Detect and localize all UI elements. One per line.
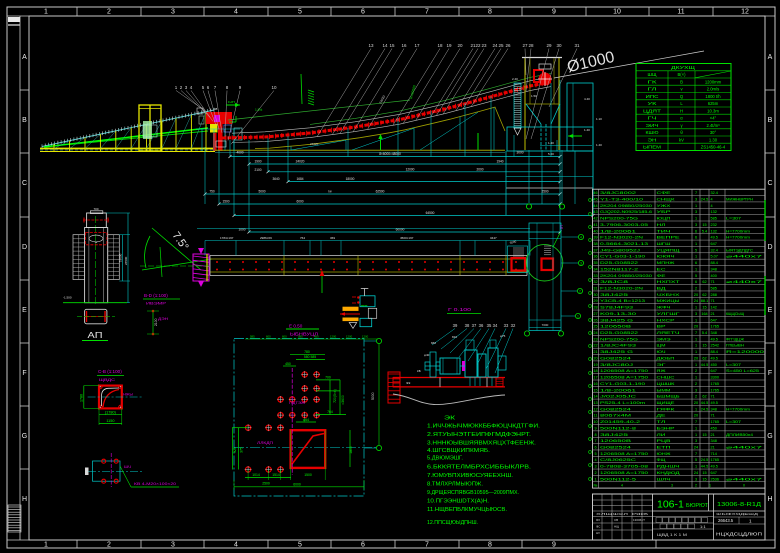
svg-text:15: 15 — [702, 477, 706, 481]
svg-text:34: 34 — [493, 323, 498, 328]
svg-text:37: 37 — [472, 323, 477, 328]
svg-text:3: 3 — [671, 484, 673, 488]
svg-text:45: 45 — [593, 198, 597, 202]
svg-text:ШЧ: ШЧ — [124, 465, 132, 469]
svg-text:88.1: 88.1 — [701, 299, 708, 303]
svg-text:71: 71 — [711, 299, 715, 303]
svg-text:24.5: 24.5 — [701, 407, 708, 411]
svg-text:4: 4 — [711, 198, 713, 202]
svg-text:3: 3 — [695, 210, 697, 214]
svg-text:625m: 625m — [708, 101, 719, 106]
svg-text:B: B — [680, 79, 683, 84]
svg-text:8067x4M: 8067x4M — [600, 414, 631, 418]
svg-text:42: 42 — [593, 217, 597, 221]
svg-text:=3600: =3600 — [341, 395, 345, 405]
svg-text:44.5: 44.5 — [701, 465, 708, 469]
svg-text:30: 30 — [556, 43, 562, 48]
svg-text:1200mm: 1200mm — [705, 79, 722, 84]
svg-text:ЮКЯЧ: ЮКЯЧ — [657, 255, 676, 259]
svg-text:232: 232 — [711, 223, 717, 227]
svg-text:⌀440x7: ⌀440x7 — [726, 446, 762, 450]
svg-text:12.ППСЩЮЫДПНШ.: 12.ППСЩЮЫДПНШ. — [427, 520, 478, 526]
svg-text:H=7700mm: H=7700mm — [726, 236, 750, 240]
svg-text:7.ЮМУВПХИВЮСУЯЕЕХНШ.: 7.ЮМУВПХИВЮСУЯЕЕХНШ. — [427, 473, 513, 479]
svg-text:11: 11 — [677, 9, 684, 16]
svg-text:15: 15 — [593, 388, 597, 392]
svg-text:450: 450 — [285, 362, 291, 366]
svg-text:31: 31 — [593, 287, 597, 291]
svg-text:РДНШЧ: РДНШЧ — [657, 465, 681, 469]
svg-text:39: 39 — [453, 323, 458, 328]
svg-text:24.5: 24.5 — [701, 458, 708, 462]
svg-text:580 585: 580 585 — [304, 355, 316, 359]
svg-text:925: 925 — [233, 447, 237, 453]
svg-text:φ75: φ75 — [500, 334, 506, 338]
svg-text:1.30: 1.30 — [709, 137, 718, 142]
svg-text:⌀440x7: ⌀440x7 — [726, 280, 762, 284]
svg-text:4: 4 — [234, 9, 238, 16]
svg-text:G: G — [22, 433, 27, 440]
svg-text:C: C — [22, 180, 27, 187]
svg-text:4000: 4000 — [236, 151, 243, 155]
svg-text:20: 20 — [457, 43, 463, 48]
svg-text:B(×): B(×) — [677, 72, 686, 77]
svg-text:H: H — [22, 496, 27, 503]
svg-text:1: 1 — [695, 350, 697, 354]
svg-text:7: 7 — [695, 452, 697, 456]
svg-text:46: 46 — [593, 191, 597, 195]
svg-text:6: 6 — [695, 229, 697, 233]
svg-text:5: 5 — [298, 9, 302, 16]
svg-text:164: 164 — [701, 312, 707, 316]
svg-text:1: 1 — [695, 376, 697, 380]
svg-text:1206508 A=1750: 1206508 A=1750 — [600, 452, 648, 456]
svg-text:1200: 1200 — [362, 335, 369, 339]
svg-text:15: 15 — [702, 344, 706, 348]
svg-text:1150: 1150 — [106, 419, 114, 423]
svg-text:7000: 7000 — [542, 323, 549, 327]
svg-text:25: 25 — [593, 325, 597, 329]
svg-text:J/02J05JC: J/02J05JC — [600, 395, 636, 399]
svg-text:348: 348 — [711, 331, 717, 335]
svg-text:3: 3 — [594, 465, 596, 469]
svg-text:ЕТП: ЕТП — [657, 446, 671, 450]
svg-text:H: H — [680, 108, 683, 113]
svg-text:CY1-G03-1-190: CY1-G03-1-190 — [600, 255, 645, 259]
svg-text:СНШС: СНШС — [657, 376, 675, 380]
svg-text:ШЩ: ШЩ — [648, 72, 657, 77]
svg-text:ЭМЭ: ЭМЭ — [657, 337, 671, 341]
svg-text:32: 32 — [593, 280, 597, 284]
svg-text:3: 3 — [695, 198, 697, 202]
svg-text:ДЮБП: ДЮБП — [657, 357, 675, 361]
svg-text:750: 750 — [209, 190, 215, 194]
svg-text:14: 14 — [382, 43, 388, 48]
svg-text:142: 142 — [711, 306, 717, 310]
svg-text:R≈120000: R≈120000 — [726, 350, 764, 354]
svg-text:15: 15 — [702, 306, 706, 310]
svg-text:H=7700mm: H=7700mm — [726, 407, 750, 411]
svg-text:0-5664-3021-13: 0-5664-3021-13 — [600, 242, 648, 246]
svg-text:34: 34 — [593, 267, 597, 271]
svg-text:3: 3 — [695, 477, 697, 481]
svg-text:2: 2 — [695, 369, 697, 373]
svg-text:ВД: ВД — [657, 287, 667, 291]
svg-text:12000: 12000 — [406, 167, 415, 171]
svg-text:3-7906-3003-05: 3-7906-3003-05 — [600, 223, 648, 227]
svg-text:6: 6 — [695, 280, 697, 284]
svg-text:28: 28 — [528, 43, 534, 48]
svg-text:1: 1 — [695, 433, 697, 437]
svg-text:71: 71 — [711, 280, 715, 284]
svg-text:ЕС: ЕС — [657, 267, 666, 271]
svg-text:720(5×4): 720(5×4) — [333, 389, 337, 403]
svg-text:26643.5: 26643.5 — [718, 518, 734, 523]
svg-text:3: 3 — [695, 312, 697, 316]
svg-text:1: 1 — [695, 242, 697, 246]
svg-text:5: 5 — [594, 452, 596, 456]
svg-text:26500: 26500 — [124, 256, 128, 265]
svg-text:H=7700mm: H=7700mm — [726, 229, 750, 233]
svg-text:3: 3 — [171, 542, 175, 549]
svg-text:1200: 1200 — [330, 335, 337, 339]
svg-text:15: 15 — [389, 43, 395, 48]
svg-text:2K204 09850/25030: 2K204 09850/25030 — [600, 274, 652, 278]
svg-text:2000: 2000 — [476, 167, 483, 171]
svg-text:2: 2 — [594, 471, 596, 475]
svg-text:6: 6 — [695, 261, 697, 265]
svg-text:764: 764 — [300, 236, 305, 240]
svg-text:24: 24 — [593, 331, 597, 335]
svg-text:4: 4 — [711, 204, 713, 208]
svg-text:PS25-4 L=100m: PS25-4 L=100m — [600, 401, 645, 405]
svg-text:ГК: ГК — [648, 79, 658, 84]
svg-text:B-D (1:100): B-D (1:100) — [144, 293, 168, 298]
svg-text:ГПЕЫВН: ГПЕЫВН — [726, 344, 744, 348]
svg-text:4.40: 4.40 — [584, 97, 590, 101]
svg-text:1.50: 1.50 — [531, 94, 537, 98]
svg-text:24020: 24020 — [310, 142, 319, 146]
svg-text:ФГГЩЦЖ: ФГГЩЦЖ — [726, 337, 745, 341]
svg-text:36: 36 — [593, 255, 597, 259]
svg-text:0-7808-3705-08: 0-7808-3705-08 — [600, 465, 648, 469]
svg-text:3300: 3300 — [711, 376, 719, 380]
svg-text:8.ТМЛХРЛМЫЮПЖ.: 8.ТМЛХРЛМЫЮПЖ. — [427, 481, 483, 487]
svg-text:ЮЧ: ЮЧ — [657, 350, 667, 354]
svg-text:22: 22 — [593, 344, 597, 348]
svg-text:62500: 62500 — [376, 190, 385, 194]
svg-text:5.4: 5.4 — [702, 229, 707, 233]
svg-text:369: 369 — [330, 236, 335, 240]
svg-text:6000: 6000 — [296, 200, 303, 204]
svg-text:kV: kV — [679, 137, 684, 142]
svg-text:1765: 1765 — [711, 388, 719, 392]
svg-text:2: 2 — [579, 289, 581, 293]
svg-text:-1.500: -1.500 — [63, 296, 72, 300]
svg-text:2: 2 — [695, 395, 697, 399]
svg-text:1: 1 — [695, 407, 697, 411]
svg-text:32: 32 — [511, 323, 516, 328]
svg-text:ФЕ: ФЕ — [657, 274, 667, 278]
svg-text:1: 1 — [577, 314, 579, 318]
svg-text:F12-N3020-2N: F12-N3020-2N — [600, 236, 643, 240]
svg-text:3: 3 — [171, 9, 175, 16]
svg-text:585: 585 — [711, 217, 717, 221]
svg-text:20: 20 — [694, 414, 698, 418]
svg-text:64500: 64500 — [426, 211, 435, 215]
svg-text:1: 1 — [695, 217, 697, 221]
svg-text:8: 8 — [594, 433, 596, 437]
svg-text:ГЛ: ГЛ — [648, 87, 657, 92]
svg-text:2K204 09850/25030: 2K204 09850/25030 — [600, 204, 652, 208]
svg-text:МЖИЦЫ: МЖИЦЫ — [657, 299, 681, 303]
svg-text:647: 647 — [711, 471, 717, 475]
svg-text:2500: 2500 — [262, 482, 270, 486]
svg-text:2500: 2500 — [541, 190, 548, 194]
svg-text:ДКУХЩ: ДКУХЩ — [671, 65, 696, 70]
svg-text:K09-13-30: K09-13-30 — [600, 312, 636, 316]
svg-text:6: 6 — [361, 9, 365, 16]
svg-text:348: 348 — [711, 407, 717, 411]
svg-text:G082524: G082524 — [600, 446, 631, 450]
svg-text:НХПХТ: НХПХТ — [657, 280, 681, 284]
svg-text:2542: 2542 — [711, 344, 719, 348]
svg-text:2.40: 2.40 — [512, 77, 518, 81]
svg-text:КШЮ: КШЮ — [646, 130, 660, 135]
svg-text:ЯХ: ЯХ — [596, 518, 600, 522]
svg-text:3447: 3447 — [490, 236, 497, 240]
svg-text:5000: 5000 — [371, 392, 375, 400]
svg-text:КЩЩСЫЩ: КЩЩСЫЩ — [726, 312, 745, 316]
svg-text:C/8J0625C: C/8J0625C — [600, 458, 636, 462]
svg-text:1684: 1684 — [296, 177, 303, 181]
svg-text:375: 375 — [239, 447, 243, 453]
svg-text:500N112-8: 500N112-8 — [600, 426, 636, 430]
svg-text:1940: 1940 — [496, 160, 503, 164]
svg-text:49.5: 49.5 — [711, 337, 718, 341]
svg-text:22: 22 — [475, 43, 481, 48]
svg-text:ЭН: ЭН — [648, 137, 657, 142]
svg-text:49.5: 49.5 — [711, 401, 718, 405]
svg-text:27: 27 — [593, 312, 597, 316]
svg-text:B: B — [768, 117, 773, 124]
svg-text:30°: 30° — [710, 130, 717, 135]
svg-text:20: 20 — [593, 357, 597, 361]
svg-text:ЭК: ЭК — [444, 416, 456, 422]
svg-text:1: 1 — [44, 542, 48, 549]
svg-text:ДПЛИВ50x4: ДПЛИВ50x4 — [726, 433, 753, 437]
svg-text:400: 400 — [711, 274, 717, 278]
svg-text:1: 1 — [695, 255, 697, 259]
svg-text:E: E — [768, 307, 773, 314]
svg-text:φ40: φ40 — [424, 353, 430, 357]
svg-text:3/8JC8: 3/8JC8 — [600, 280, 628, 284]
svg-text:ЯЖ: ЯЖ — [657, 369, 667, 373]
svg-text:1: 1 — [695, 337, 697, 341]
svg-text:16: 16 — [401, 43, 407, 48]
svg-text:1: 1 — [695, 204, 697, 208]
svg-text:21: 21 — [711, 312, 715, 316]
svg-text:33: 33 — [593, 274, 597, 278]
svg-text:1206508 A=1750: 1206508 A=1750 — [600, 376, 648, 380]
svg-text:D: D — [767, 244, 772, 251]
svg-text:2: 2 — [107, 542, 111, 549]
svg-text:15: 15 — [702, 223, 706, 227]
svg-text:1: 1 — [695, 267, 697, 271]
svg-text:1206508 A=1750: 1206508 A=1750 — [600, 471, 648, 475]
svg-text:660: 660 — [431, 341, 436, 345]
svg-text:1: 1 — [695, 344, 697, 348]
svg-text:ЭГ: ЭГ — [657, 363, 666, 367]
svg-text:2.4t/m³: 2.4t/m³ — [706, 123, 720, 128]
svg-text:20: 20 — [694, 357, 698, 361]
svg-text:МПНЖ: МПНЖ — [657, 261, 676, 265]
svg-text:УБР: УБР — [657, 210, 672, 214]
svg-text:1/8-20061: 1/8-20061 — [600, 388, 636, 392]
svg-text:1/8-20061: 1/8-20061 — [600, 229, 636, 233]
svg-text:7: 7 — [695, 420, 697, 424]
svg-text:6: 6 — [695, 236, 697, 240]
svg-text:8: 8 — [488, 542, 492, 549]
svg-text:348: 348 — [711, 267, 717, 271]
svg-text:1206508 A=1750: 1206508 A=1750 — [600, 369, 648, 373]
svg-text:НЛ: НЛ — [657, 223, 667, 227]
svg-text:5: 5 — [695, 274, 697, 278]
svg-text:647: 647 — [711, 318, 717, 322]
svg-text:ЛИ: ЛИ — [657, 433, 666, 437]
svg-text:7: 7 — [425, 9, 429, 16]
svg-text:ЖФЧ: ЖФЧ — [657, 306, 672, 310]
svg-text:5: 5 — [298, 542, 302, 549]
svg-text:29: 29 — [546, 43, 552, 48]
svg-text:7: 7 — [695, 191, 697, 195]
svg-text:1: 1 — [695, 306, 697, 310]
svg-text:ЛЛКДП: ЛЛКДП — [257, 441, 274, 445]
svg-text:25: 25 — [498, 43, 504, 48]
svg-text:КБ: КБ — [417, 369, 421, 373]
svg-text:ЫПЕМ: ЫПЕМ — [643, 145, 662, 150]
svg-text:E: E — [22, 307, 27, 314]
svg-text:132: 132 — [711, 210, 717, 214]
svg-text:2: 2 — [695, 484, 697, 488]
svg-text:38: 38 — [593, 242, 597, 246]
svg-text:РЯКБ: РЯКБ — [632, 512, 648, 516]
svg-text:D25-G08522: D25-G08522 — [600, 261, 638, 265]
svg-text:43: 43 — [593, 210, 597, 214]
svg-text:13: 13 — [368, 43, 374, 48]
svg-text:GJQ202-N0925/185-6: GJQ202-N0925/185-6 — [600, 210, 652, 214]
svg-text:3000: 3000 — [516, 151, 523, 155]
svg-text:1.5%: 1.5% — [255, 108, 262, 112]
svg-text:600: 600 — [266, 335, 271, 339]
svg-text:1514: 1514 — [272, 473, 280, 477]
svg-text:585: 585 — [711, 287, 717, 291]
svg-text:37: 37 — [593, 248, 597, 252]
svg-text:H: H — [767, 496, 772, 503]
svg-text:НЖЫ: НЖЫ — [123, 393, 133, 397]
svg-text:2: 2 — [695, 382, 697, 386]
svg-text:3: 3 — [695, 223, 697, 227]
svg-text:13: 13 — [593, 401, 597, 405]
svg-text:Y3CB-4 B=1213: Y3CB-4 B=1213 — [600, 299, 645, 303]
svg-text:ШЛЧ: ШЛЧ — [657, 477, 672, 481]
svg-text:1014: 1014 — [252, 473, 260, 477]
svg-text:810: 810 — [452, 335, 457, 339]
svg-text:(1780): (1780) — [105, 410, 117, 414]
svg-text:S78J4F93: S78J4F93 — [600, 306, 633, 310]
svg-text:152N8117-2: 152N8117-2 — [600, 267, 638, 271]
svg-text:36: 36 — [479, 323, 484, 328]
svg-text:1500: 1500 — [222, 200, 229, 204]
svg-text:3/8JC80J: 3/8JC80J — [600, 363, 633, 367]
svg-text:106-1: 106-1 — [657, 499, 684, 511]
svg-text:1800 t/h: 1800 t/h — [705, 94, 721, 99]
svg-text:1: 1 — [709, 484, 711, 488]
svg-text:62: 62 — [702, 293, 706, 297]
svg-text:88.4: 88.4 — [711, 261, 718, 265]
svg-text:24: 24 — [694, 471, 698, 475]
svg-text:1000: 1000 — [238, 228, 245, 232]
svg-text:D: D — [22, 244, 27, 251]
svg-text:4: 4 — [594, 458, 596, 462]
svg-text:16: 16 — [593, 382, 597, 386]
svg-text:ИВЭМР: ИВЭМР — [146, 301, 166, 306]
svg-text:БЭНР: БЭНР — [657, 426, 676, 430]
svg-text:27: 27 — [522, 43, 528, 48]
svg-text:ТЛ: ТЛ — [657, 420, 667, 424]
svg-text:МИЖНВРТРН: МИЖНВРТРН — [726, 198, 753, 202]
svg-text:1: 1 — [749, 519, 752, 524]
svg-text:6: 6 — [594, 446, 596, 450]
svg-text:647: 647 — [711, 242, 717, 246]
svg-text:L=307: L=307 — [726, 217, 741, 221]
svg-text:714: 714 — [711, 452, 717, 456]
svg-text:17: 17 — [593, 376, 597, 380]
svg-text:15: 15 — [702, 471, 706, 475]
svg-text:32.4: 32.4 — [711, 191, 718, 195]
svg-text:НУ: НУ — [596, 531, 600, 535]
svg-text:2986×69: 2986×69 — [260, 236, 272, 240]
svg-text:B: B — [22, 117, 27, 124]
svg-text:71: 71 — [711, 395, 715, 399]
svg-text:21: 21 — [593, 350, 597, 354]
svg-text:3: 3 — [580, 261, 582, 265]
svg-text:ГЧ: ГЧ — [648, 116, 657, 121]
svg-text:9: 9 — [552, 542, 556, 549]
svg-text:2536: 2536 — [711, 477, 719, 481]
svg-text:600: 600 — [282, 335, 287, 339]
svg-text:1: 1 — [695, 465, 697, 469]
svg-text:348: 348 — [711, 439, 717, 443]
svg-text:УЦЯПЩ: УЦЯПЩ — [657, 248, 681, 252]
svg-text:2100: 2100 — [254, 168, 261, 172]
svg-text:L=307: L=307 — [726, 363, 741, 367]
svg-text:•••: ••• — [95, 242, 98, 245]
svg-text:4: 4 — [621, 484, 623, 488]
svg-text:СВ: СВ — [614, 518, 618, 522]
svg-text:12: 12 — [593, 407, 597, 411]
svg-text:10: 10 — [271, 85, 277, 90]
svg-text:ЩМ: ЩМ — [657, 344, 666, 348]
svg-text:62: 62 — [702, 280, 706, 284]
svg-text:585: 585 — [250, 335, 255, 339]
svg-text:120650B: 120650B — [600, 439, 632, 443]
svg-text:1.40: 1.40 — [548, 141, 554, 145]
svg-text:ШГШ: ШГШ — [657, 242, 672, 246]
svg-text:G: G — [767, 433, 772, 440]
svg-text:28: 28 — [593, 306, 597, 310]
svg-text:5000: 5000 — [258, 190, 265, 194]
